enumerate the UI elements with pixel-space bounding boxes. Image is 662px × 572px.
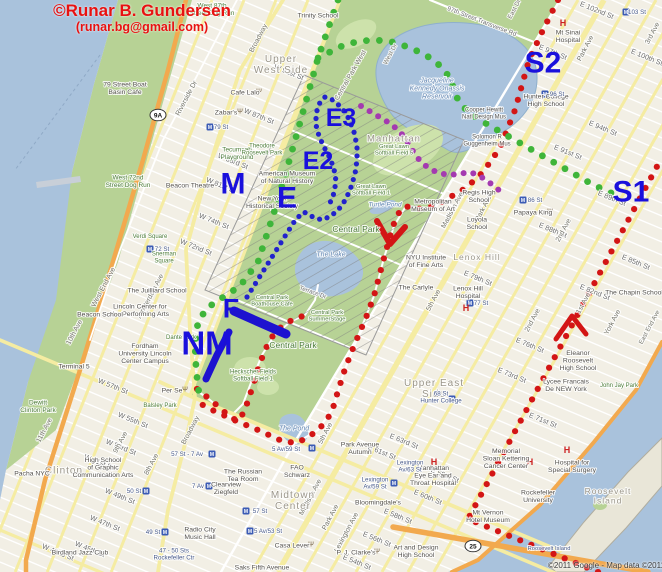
svg-text:M: M [310,446,314,452]
copyright-email: (runar.bg@gmail.com) [26,20,258,34]
label-poi: Radio CityMusic Hall [184,527,216,542]
label-poi: NYU Instituteof Fine Arts [406,255,446,270]
label-poi: Mt SinaiHospital [556,30,581,45]
label-big: S1 [613,176,650,209]
label-poi: Beacon Theatre [166,182,214,189]
map-screenshot: MMMMMMMMMMMMMMMHHHHHΨΨΨΨΨΨ9A25W 91st StW… [0,0,662,572]
label-sub: 57 St [253,508,268,515]
label-park: Balsley Park [143,403,177,409]
label-poi: Saks Fifth Avenue [235,564,290,571]
label-poi: Pacha NYC [14,470,50,477]
label-poi: Lenox HillHospital [453,286,483,301]
label-park: Central Park [269,340,317,350]
label-poi: The Juilliard School [127,287,187,294]
label-sub: 49 St [146,529,161,536]
label-poi: Zabar's [215,109,238,116]
label-sub: 79 St [214,124,229,131]
label-water: The Lake [316,251,345,258]
copyright-overlay: ©Runar B. Gundersen (runar.bg@gmail.com) [26,1,258,34]
label-sub: 72 St [155,246,170,253]
label-poi: Trinity School [298,12,339,19]
label-sub: 77 St [474,300,489,307]
label-park: Central ParkSummerStage [308,310,345,322]
label-park: Central Park [332,224,380,234]
label-poi: Papaya King [514,209,553,216]
svg-text:9A: 9A [154,112,163,119]
label-poi: Terminal 5 [58,363,90,370]
label-big: E3 [326,104,357,132]
label-sub: 103 St [628,9,646,16]
label-poi: Casa Lever [275,542,310,549]
svg-text:M: M [244,509,248,515]
label-sub: 86 St [528,197,543,204]
label-park: ShermanSquare [152,252,176,265]
label-poi: Bloomingdale's [355,499,401,506]
svg-text:25: 25 [469,543,477,550]
label-sub: 47 - 50 StsRockefeller Ctr [154,548,195,562]
label-poi: ClearviewZiegfeld [211,482,241,497]
label-park: Verdi Square [133,234,168,240]
label-sub: 5 Av/59 St [272,446,300,453]
label-park: Great LawnSoftball Field 5 [375,144,413,156]
label-poi: Cafe Lalo [230,89,259,96]
label-big: S2 [525,47,562,80]
label-sub: 57 St - 7 Av [171,451,204,458]
label-park: Heckscher FieldsSoftball Field 1 [230,370,276,383]
svg-text:M: M [144,489,148,495]
label-sub: 96 St [550,91,565,98]
label-poi: 79 Street BoatBasin Cafe [103,82,147,97]
label-area: MidtownCenter [271,490,315,512]
label-poi: Lycee FrancaisDe NEW York [543,379,589,394]
svg-text:M: M [392,481,396,487]
restaurant-icon: Ψ [182,387,188,394]
label-poi: MetropolitanMuseum of Art [411,199,455,214]
label-sub: 50 St [127,488,142,495]
label-big: F [223,293,240,323]
label-poi: LoyolaSchool [467,217,488,232]
label-area: Manhattan [367,133,421,144]
label-poi: Per Se [162,387,183,394]
restaurant-icon: Ψ [237,109,243,116]
hospital-icon: H [564,445,571,455]
label-big: M [221,168,246,201]
label-poi: Cooper HewittNatl Design Mus [462,108,506,121]
label-poi: P. J. Clarke's [337,549,377,556]
map-canvas[interactable]: MMMMMMMMMMMMMMMHHHHHΨΨΨΨΨΨ9A25W 91st StW… [0,0,662,572]
label-poi: Birdland Jazz Club [52,549,109,556]
svg-text:M: M [521,198,525,204]
label-park: Great LawnSoftball Field 1 [352,184,390,196]
hospital-icon: H [463,303,470,313]
label-poi: Beacon School [77,311,123,318]
label-water: The Pond [279,425,310,432]
label-park: Central ParkBoathouse Cafe [251,295,293,307]
label-sub: 5 Av/53 St [254,528,282,535]
label-sub: LexingtonAv/59 St [362,477,389,491]
label-poi: The Chapin School [605,289,662,296]
label-area: Lenox Hill [453,252,500,262]
label-big: E [277,182,297,215]
label-park: John Jay Park [600,383,639,389]
svg-text:M: M [208,125,212,131]
label-big: NM [181,325,232,362]
hospital-icon: H [560,18,567,28]
svg-text:M: M [248,529,252,535]
map-attribution: ©2011 Google - Map data ©2011 Goog [548,561,662,570]
svg-text:M: M [163,530,167,536]
label-sub: 7 Av [192,483,205,490]
svg-text:M: M [210,452,214,458]
copyright-name: ©Runar B. Gundersen [26,1,258,20]
label-big: E2 [303,147,334,175]
label-poi: The Carlyle [399,284,434,291]
label-poi: RockefellerUniversity [521,490,556,505]
label-poi: Art and DesignHigh School [394,545,439,560]
label-sub: LexingtonAv/63 St [397,460,424,474]
label-sub: Roosevelt Island [528,546,571,552]
label-water: Turtle Pond [368,201,402,208]
